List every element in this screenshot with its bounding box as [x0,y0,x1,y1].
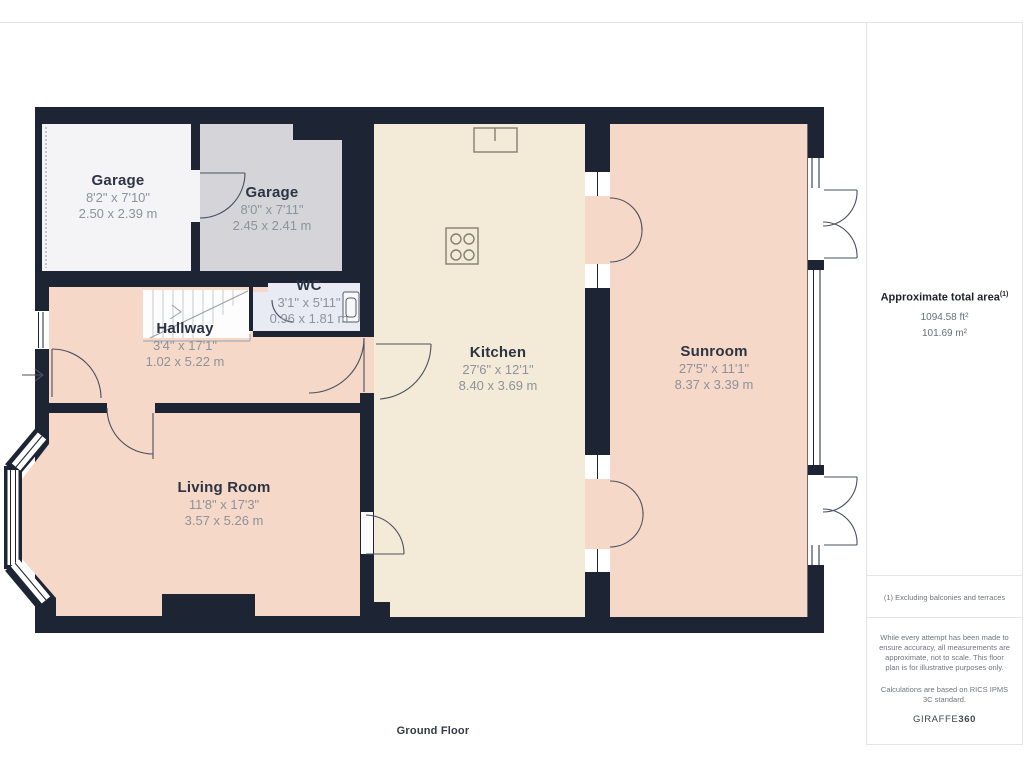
floorplan-page: Garage 8'2" x 7'10" 2.50 x 2.39 m Garage… [0,0,1024,768]
sunroom-exterior-doors-lower [823,477,857,545]
kitchen-step-wall [374,602,390,617]
room-label-wc: WC 3'1" x 5'11" 0.96 x 1.81 m [270,276,349,327]
sunroom-right-wall [808,124,825,617]
total-area-m: 101.69 m² [867,328,1022,339]
total-area-ft: 1094.58 ft² [867,312,1022,323]
info-sidebar: Approximate total area(1) 1094.58 ft² 10… [866,22,1023,745]
disclaimer-text: While every attempt has been made to ens… [878,633,1011,673]
standard-text: Calculations are based on RICS IPMS 3C s… [878,685,1011,705]
sunroom-exterior-doors-upper [823,190,857,258]
floor-name-label: Ground Floor [397,725,470,737]
room-label-garage-2: Garage 8'0" x 7'11" 2.45 x 2.41 m [233,183,312,234]
room-label-sunroom: Sunroom 27'5" x 11'1" 8.37 x 3.39 m [675,342,754,393]
room-label-garage-1: Garage 8'2" x 7'10" 2.50 x 2.39 m [79,171,158,222]
sidebar-divider [867,575,1022,576]
brand-logo: GIRAFFE360 [867,714,1022,725]
sidebar-divider [867,617,1022,618]
footnote-text: (1) Excluding balconies and terraces [875,593,1014,602]
room-label-living-room: Living Room 11'8" x 17'3" 3.57 x 5.26 m [177,478,270,529]
total-area-title: Approximate total area(1) [867,291,1022,304]
footnote-marker: (1) [1000,291,1009,298]
room-label-kitchen: Kitchen 27'6" x 12'1" 8.40 x 3.69 m [459,343,538,394]
room-label-hallway: Hallway 3'4" x 17'1" 1.02 x 5.22 m [146,319,225,370]
floorplan-area: Garage 8'2" x 7'10" 2.50 x 2.39 m Garage… [0,0,866,768]
chimney-breast [162,594,255,616]
